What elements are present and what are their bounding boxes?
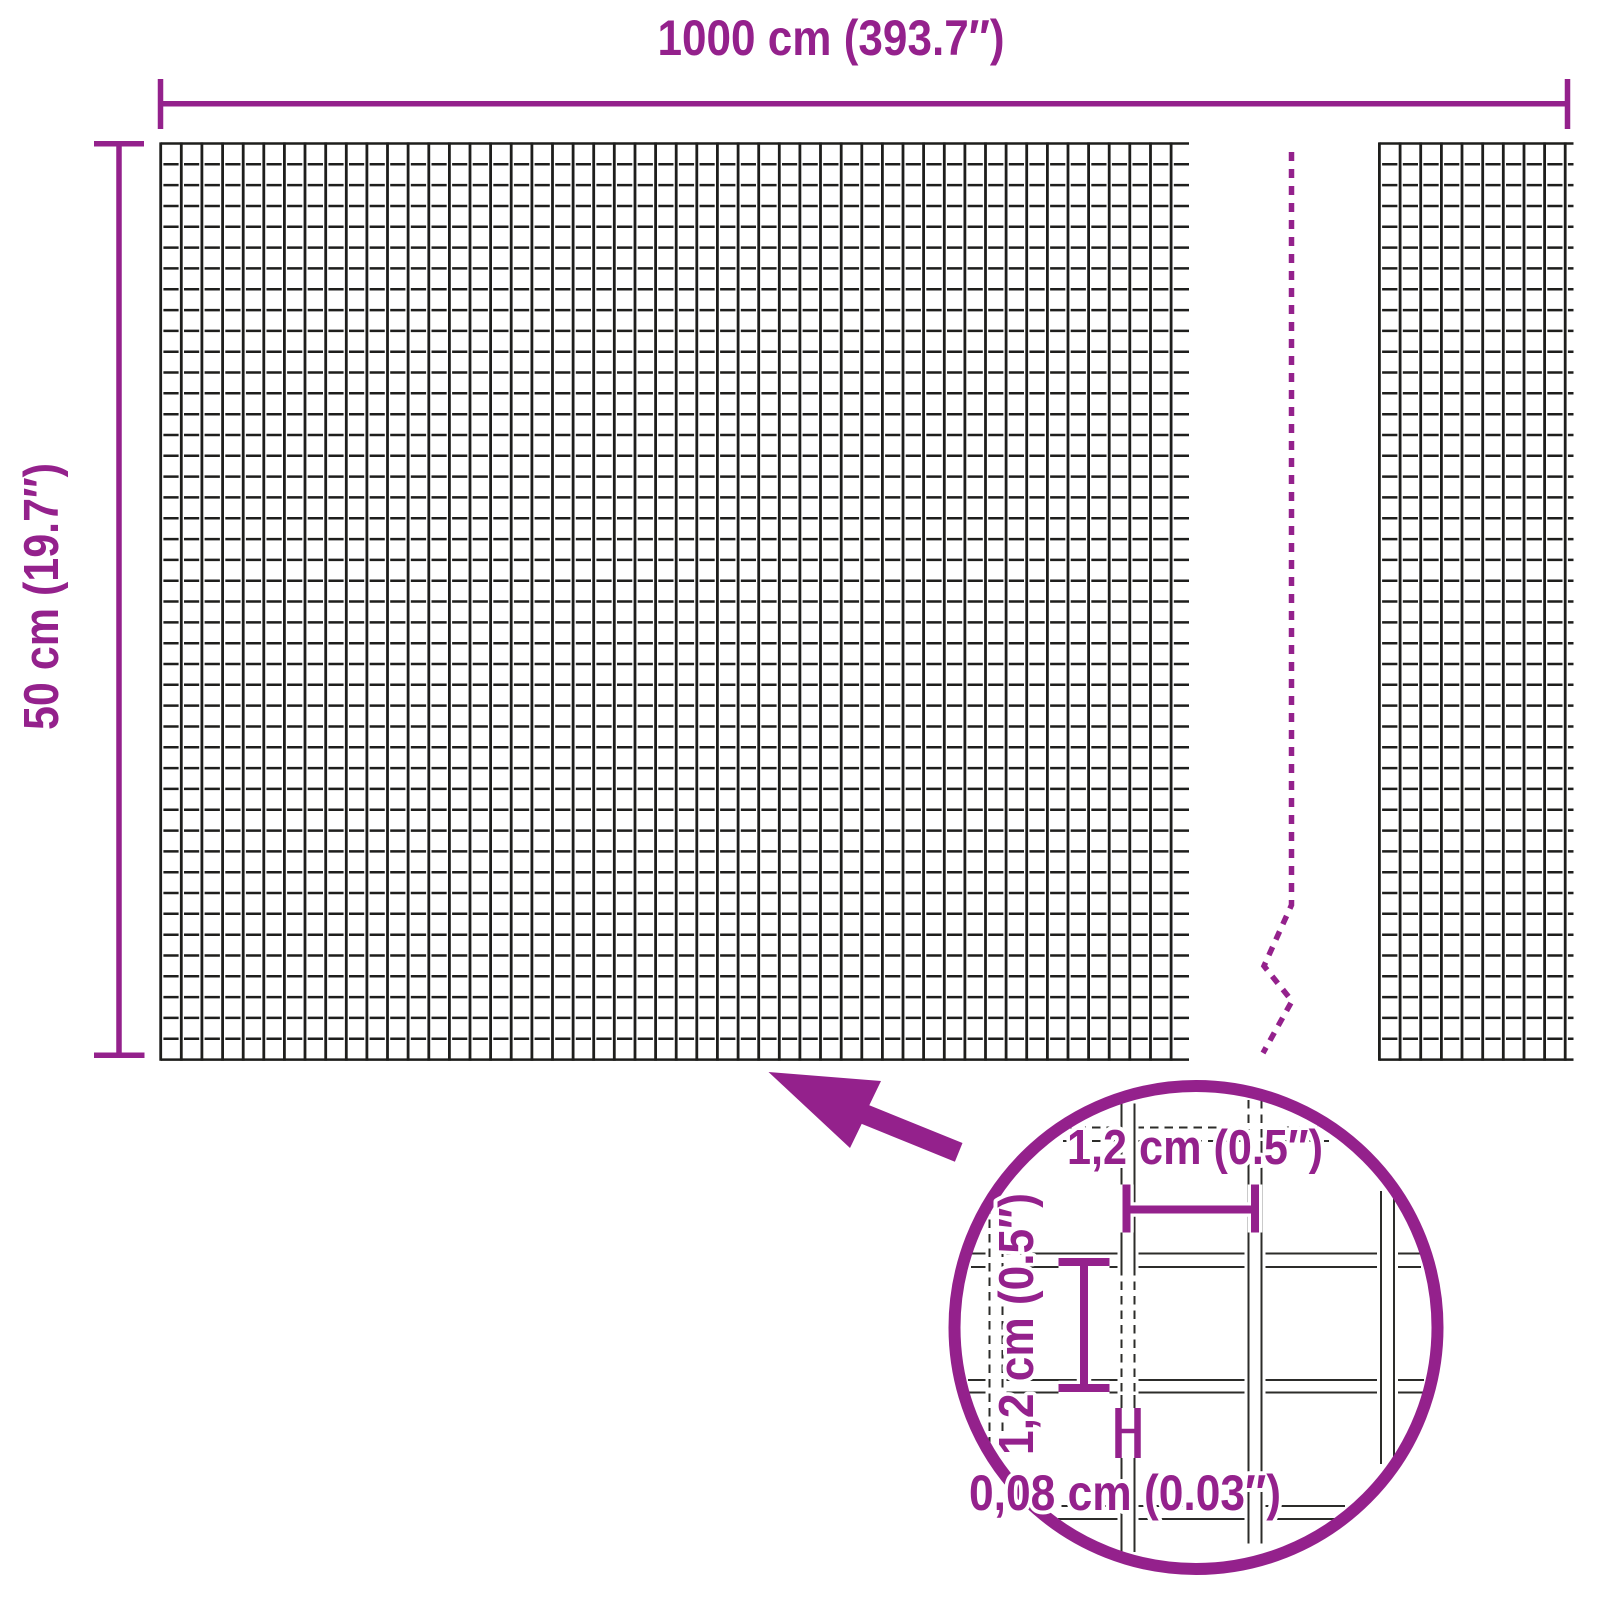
svg-text:0,08 cm (0.03″): 0,08 cm (0.03″): [969, 1465, 1281, 1521]
svg-text:1,2 cm (0.5″): 1,2 cm (0.5″): [1067, 1121, 1323, 1175]
svg-text:1000 cm (393.7″): 1000 cm (393.7″): [658, 10, 1005, 66]
svg-text:1,2 cm (0.5″): 1,2 cm (0.5″): [990, 1193, 1044, 1455]
svg-text:50 cm (19.7″): 50 cm (19.7″): [15, 463, 69, 730]
